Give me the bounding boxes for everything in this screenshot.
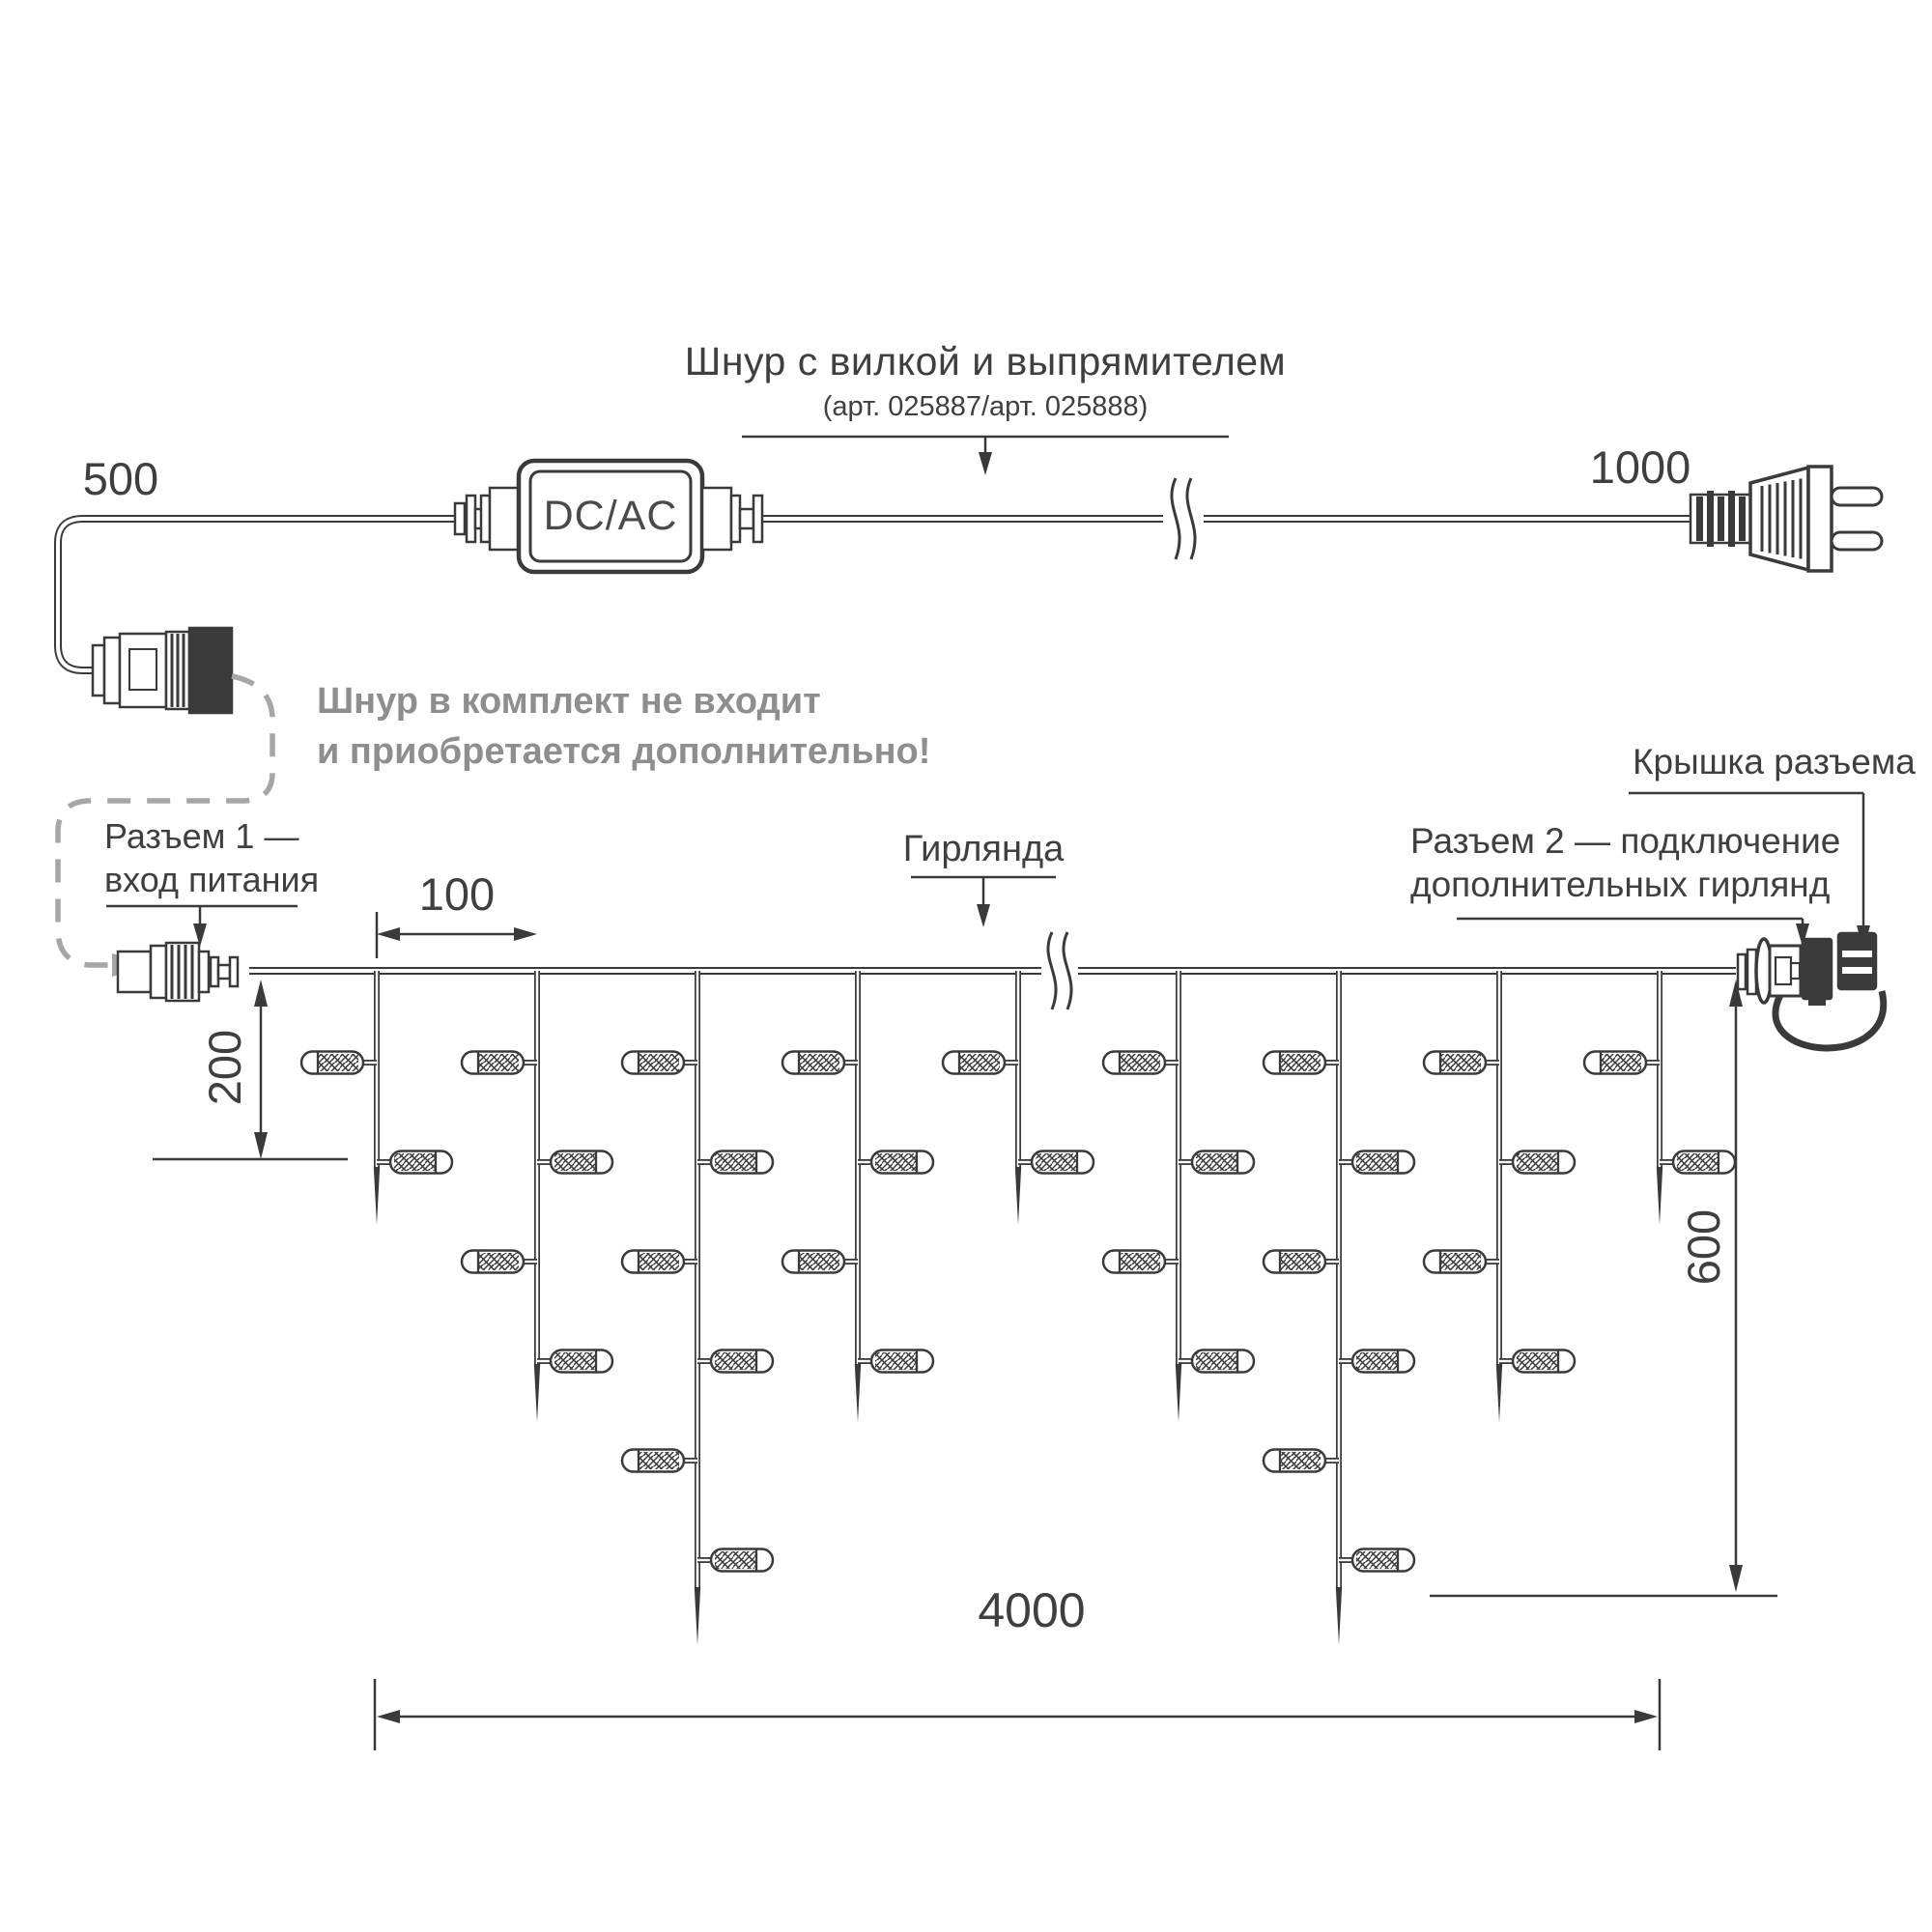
lamp-hatch xyxy=(1280,1054,1321,1071)
lamp-icon xyxy=(697,1350,773,1373)
lamp-hatch xyxy=(1196,1352,1236,1370)
drop xyxy=(1264,971,1414,1645)
lamp-hatch xyxy=(478,1054,519,1071)
lamp-icon xyxy=(622,1052,697,1074)
lamp-hatch xyxy=(959,1054,1000,1071)
cord-break-icon xyxy=(1168,478,1197,559)
lamp-icon xyxy=(1103,1251,1179,1273)
dim-arrowhead-icon xyxy=(377,1710,400,1723)
lamp-icon xyxy=(1179,1151,1254,1174)
lamp-hatch xyxy=(478,1253,519,1270)
title-block: Шнур с вилкой и выпрямителем (арт. 02588… xyxy=(599,339,1372,423)
lamp-icon xyxy=(1339,1549,1414,1572)
drop-needle-tip xyxy=(1657,1167,1662,1225)
lamp-hatch xyxy=(1440,1253,1481,1270)
lamp-hatch xyxy=(1601,1054,1641,1071)
lamp-hatch xyxy=(1120,1253,1160,1270)
connector2-line-2: дополнительных гирлянд xyxy=(1410,863,1811,906)
nub-plate xyxy=(481,496,490,542)
lamp-hatch xyxy=(1356,1352,1397,1370)
connector-black-cap xyxy=(189,628,232,713)
dim-arrowhead-icon xyxy=(514,927,537,941)
lamp-icon xyxy=(697,1151,773,1174)
lamp-icon xyxy=(1499,1151,1575,1174)
dim-arrowhead-icon xyxy=(1729,1565,1743,1592)
connector-plate xyxy=(199,952,209,992)
connector-body xyxy=(118,952,151,992)
connector-window xyxy=(1791,963,1800,979)
connector1-line-1: Разъем 1 — xyxy=(104,814,319,858)
lamp-icon xyxy=(1264,1052,1339,1074)
lamp-hatch xyxy=(715,1153,755,1171)
connector-black-block xyxy=(1803,939,1832,999)
lamp-hatch xyxy=(1120,1054,1160,1071)
lamp-icon xyxy=(1339,1350,1414,1373)
nub-collar xyxy=(702,488,731,550)
connector-rings xyxy=(166,632,189,709)
drop-needle-tip xyxy=(1496,1364,1502,1422)
drop xyxy=(462,971,612,1422)
lamp-hatch xyxy=(554,1153,595,1171)
drop xyxy=(622,971,773,1645)
connector2-line-1: Разъем 2 — подключение xyxy=(1410,819,1811,863)
lamp-hatch xyxy=(875,1153,916,1171)
drop xyxy=(1424,971,1575,1422)
lamp-hatch xyxy=(1440,1054,1481,1071)
connector-plate xyxy=(151,946,166,998)
lamp-icon xyxy=(1179,1350,1254,1373)
lamp-hatch xyxy=(639,1253,679,1270)
drop xyxy=(782,971,933,1422)
leader-arrowhead-icon xyxy=(979,452,992,475)
garland-leader xyxy=(911,877,1056,927)
cap-stripe xyxy=(1842,967,1872,974)
connector-window xyxy=(129,649,156,690)
lamp-icon xyxy=(1103,1052,1179,1074)
lamp-hatch xyxy=(639,1054,679,1071)
lamp-icon xyxy=(1424,1052,1499,1074)
drop-needle-tip xyxy=(1336,1587,1342,1645)
dimension-100-label: 100 xyxy=(384,867,529,921)
note-line-2: и приобретается дополнительно! xyxy=(317,726,930,777)
connector1-line-2: вход питания xyxy=(104,858,319,901)
lamp-icon xyxy=(1339,1151,1414,1174)
lamp-hatch xyxy=(1517,1153,1557,1171)
dim-arrowhead-icon xyxy=(254,1132,268,1159)
lamp-hatch xyxy=(1356,1551,1397,1569)
diagram-title: Шнур с вилкой и выпрямителем xyxy=(599,339,1372,384)
garland-break-icon xyxy=(1044,932,1073,1009)
drop-needle-tip xyxy=(855,1364,861,1422)
connector1-leader xyxy=(106,906,298,947)
cap-icon xyxy=(1838,933,1876,989)
lamp-hatch xyxy=(554,1352,595,1370)
connector-window xyxy=(1776,957,1791,984)
plug-ring xyxy=(1739,497,1746,541)
lamp-icon xyxy=(622,1450,697,1472)
lamp-icon xyxy=(782,1251,858,1273)
lamp-hatch xyxy=(1036,1153,1076,1171)
lamp-hatch xyxy=(799,1054,839,1071)
lamp-icon xyxy=(1018,1151,1094,1174)
lamp-icon xyxy=(537,1151,612,1174)
lamp-icon xyxy=(782,1052,858,1074)
dimension-1000-label: 1000 xyxy=(1573,440,1708,494)
nub-bar xyxy=(740,509,753,528)
lamp-icon xyxy=(943,1052,1018,1074)
connector-plate xyxy=(1738,954,1746,989)
cap-label: Крышка разъема xyxy=(1633,742,1886,782)
lamp-icon xyxy=(1499,1350,1575,1373)
nub-plate xyxy=(731,496,740,542)
connector1-label: Разъем 1 — вход питания xyxy=(104,814,319,901)
plug-ring xyxy=(1728,491,1735,547)
lamp-hatch xyxy=(1196,1153,1236,1171)
drop xyxy=(301,971,452,1225)
note-line-1: Шнур в комплект не входит xyxy=(317,676,930,726)
lamp-icon xyxy=(462,1052,537,1074)
cord-end-connector-icon xyxy=(93,628,232,713)
lamp-icon xyxy=(1424,1251,1499,1273)
lamp-icon xyxy=(537,1350,612,1373)
nub-plate xyxy=(467,496,475,542)
lamp-hatch xyxy=(1280,1452,1321,1469)
nub-plate xyxy=(753,496,762,542)
lamp-hatch xyxy=(1280,1253,1321,1270)
dcac-converter-label: DC/AC xyxy=(519,461,702,572)
lamp-hatch xyxy=(394,1153,435,1171)
drop-needle-tip xyxy=(695,1587,700,1645)
drop-needle-tip xyxy=(374,1167,380,1225)
lamp-hatch xyxy=(715,1551,755,1569)
drop-needle-tip xyxy=(534,1364,540,1422)
dimension-500-label: 500 xyxy=(58,452,184,505)
diagram-page: Шнур с вилкой и выпрямителем (арт. 02588… xyxy=(0,0,1932,1932)
diagram-canvas xyxy=(0,0,1932,1932)
plug-prong xyxy=(1832,532,1882,550)
connector-plate xyxy=(93,645,104,696)
plug-icon xyxy=(1690,467,1882,571)
connector2-label: Разъем 2 — подключение дополнительных ги… xyxy=(1410,819,1811,906)
lamp-icon xyxy=(1264,1251,1339,1273)
connector2-leader xyxy=(1457,919,1809,947)
lamp-icon xyxy=(301,1052,377,1074)
drop xyxy=(1103,971,1254,1422)
leader-arrowhead-icon xyxy=(977,904,990,927)
note-text: Шнур в комплект не входит и приобретаетс… xyxy=(317,676,930,777)
garland-label: Гирлянда xyxy=(887,829,1080,870)
nub-plate xyxy=(455,503,465,534)
connector-tab xyxy=(1808,999,1826,1006)
lamp-icon xyxy=(622,1251,697,1273)
lamp-icon xyxy=(462,1251,537,1273)
plug-ring xyxy=(1707,491,1714,547)
dim-arrowhead-icon xyxy=(254,980,268,1007)
dimension-4000 xyxy=(375,1679,1660,1750)
lamp-hatch xyxy=(1517,1352,1557,1370)
lamp-hatch xyxy=(799,1253,839,1270)
nub-plate xyxy=(230,957,238,986)
lamp-hatch xyxy=(875,1352,916,1370)
lamp-icon xyxy=(1264,1450,1339,1472)
drop-needle-tip xyxy=(1176,1364,1181,1422)
connector-plate xyxy=(104,638,120,703)
cap-stripe xyxy=(1842,951,1872,957)
nub-bar xyxy=(218,965,230,979)
dim-arrowhead-icon xyxy=(377,927,400,941)
lamp-icon xyxy=(858,1151,933,1174)
plug-band xyxy=(1808,467,1832,571)
dim-arrowhead-icon xyxy=(1634,1710,1658,1723)
lamp-hatch xyxy=(1677,1153,1718,1171)
lamp-hatch xyxy=(639,1452,679,1469)
garland-art xyxy=(249,971,1736,1645)
dimension-200-label: 200 xyxy=(201,990,249,1145)
dimension-600-label: 600 xyxy=(1680,1170,1728,1324)
lamp-icon xyxy=(697,1549,773,1572)
lamp-icon xyxy=(1584,1052,1660,1074)
dimension-4000-label: 4000 xyxy=(930,1582,1133,1638)
diagram-subtitle: (арт. 025887/арт. 025888) xyxy=(599,391,1372,423)
lamp-hatch xyxy=(715,1352,755,1370)
nub-collar xyxy=(490,488,519,550)
title-leader xyxy=(742,437,1229,475)
connector2-icon xyxy=(1738,933,1884,1048)
lamp-hatch xyxy=(1356,1153,1397,1171)
lamp-hatch xyxy=(318,1054,358,1071)
plug-ring xyxy=(1696,497,1703,541)
lamp-icon xyxy=(377,1151,452,1174)
plug-prong xyxy=(1832,488,1882,505)
plug-ring xyxy=(1718,497,1724,541)
lamp-icon xyxy=(858,1350,933,1373)
drop-needle-tip xyxy=(1015,1167,1021,1225)
